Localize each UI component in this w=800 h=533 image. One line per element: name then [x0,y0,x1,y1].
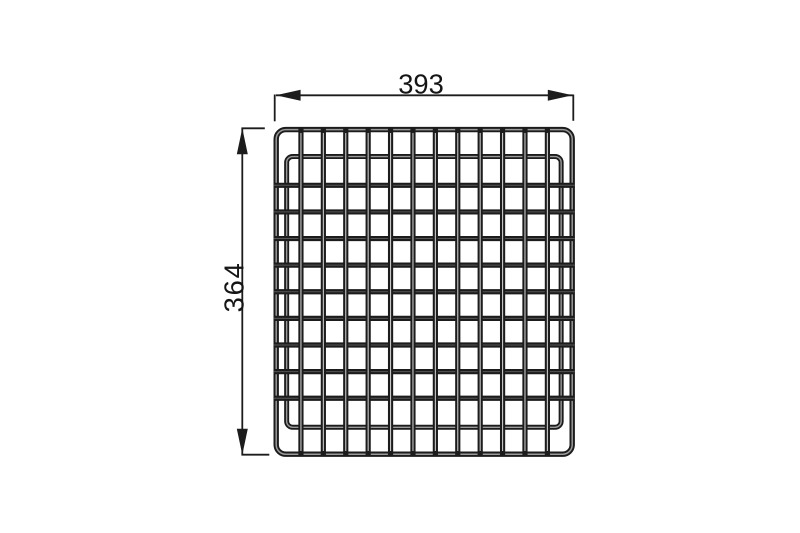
svg-text:364: 364 [218,261,249,312]
svg-text:393: 393 [398,68,444,99]
